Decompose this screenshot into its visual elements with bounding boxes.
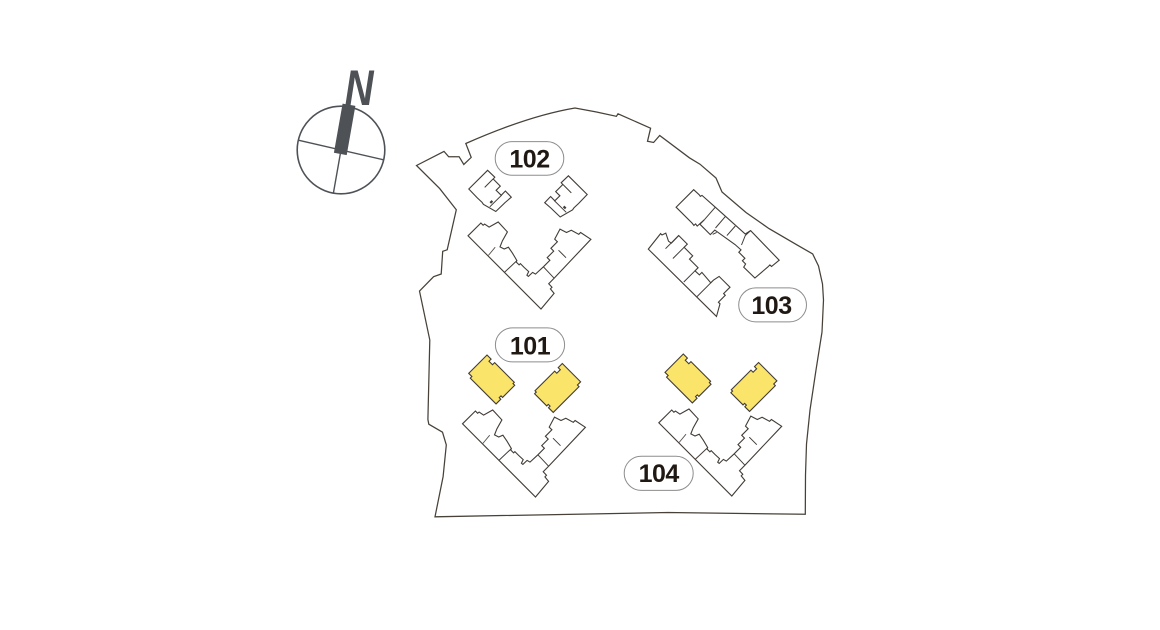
svg-text:N: N — [345, 60, 375, 116]
svg-text:104: 104 — [639, 460, 680, 488]
svg-text:102: 102 — [509, 145, 549, 173]
svg-text:101: 101 — [510, 332, 551, 360]
svg-text:103: 103 — [751, 292, 791, 320]
